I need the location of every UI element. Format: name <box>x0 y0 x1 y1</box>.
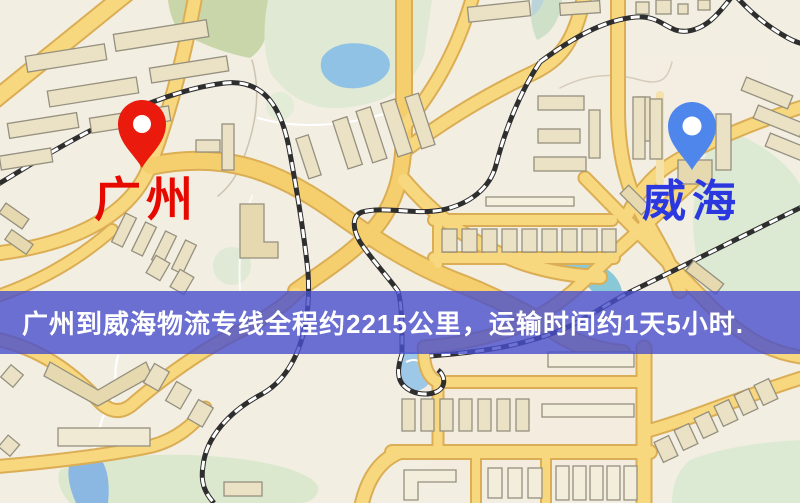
map-screenshot: 广州 威海 广州到威海物流专线全程约2215公里，运输时间约1天5小时. <box>0 0 800 503</box>
destination-city-label: 威海 <box>642 180 742 224</box>
destination-pin-icon[interactable] <box>662 98 722 176</box>
origin-city-label: 广州 <box>94 178 198 225</box>
map-canvas <box>0 0 800 503</box>
route-info-banner: 广州到威海物流专线全程约2215公里，运输时间约1天5小时. <box>0 291 800 354</box>
origin-pin-icon[interactable] <box>112 96 172 174</box>
route-info-text: 广州到威海物流专线全程约2215公里，运输时间约1天5小时. <box>0 304 744 341</box>
